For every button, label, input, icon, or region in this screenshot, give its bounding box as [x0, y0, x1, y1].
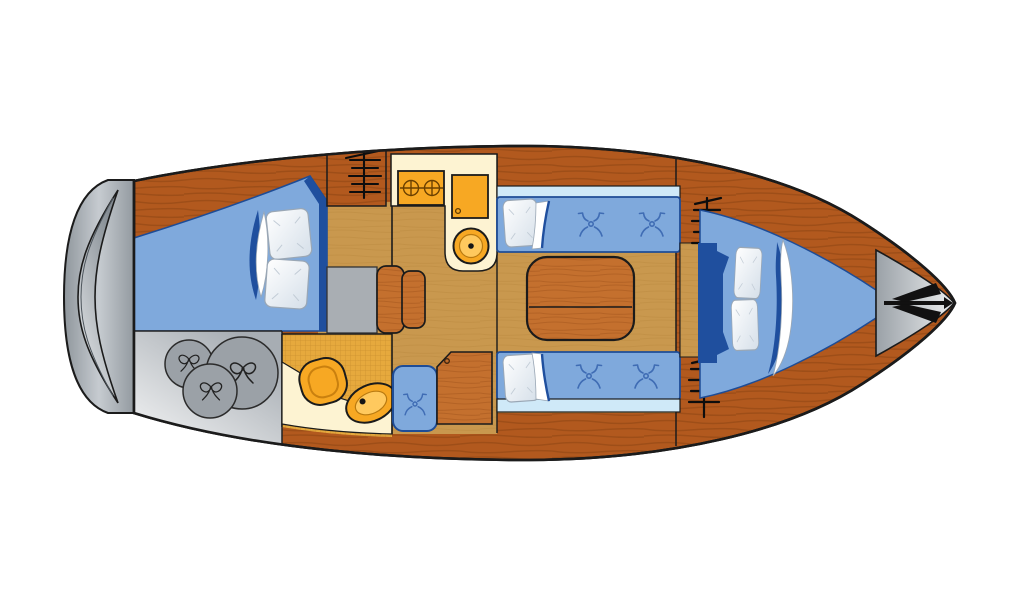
stove-icon	[398, 171, 444, 205]
sink-icon	[454, 229, 489, 264]
companionway-step	[377, 266, 404, 333]
pillow	[264, 259, 309, 310]
sail-bag-icon	[183, 364, 237, 418]
pillow	[734, 247, 763, 299]
pillow	[731, 299, 759, 350]
swim-platform	[64, 180, 134, 413]
nav-seat	[393, 366, 437, 431]
engine-box	[327, 267, 377, 333]
fridge-icon	[452, 175, 488, 218]
head-compartment	[282, 334, 402, 437]
pillow	[266, 208, 313, 260]
yacht-floorplan-diagram	[0, 0, 1024, 600]
yacht-layout-canvas	[0, 0, 1024, 600]
companionway-step	[402, 271, 425, 328]
stern-storage	[134, 331, 282, 470]
salon-table	[527, 257, 634, 340]
